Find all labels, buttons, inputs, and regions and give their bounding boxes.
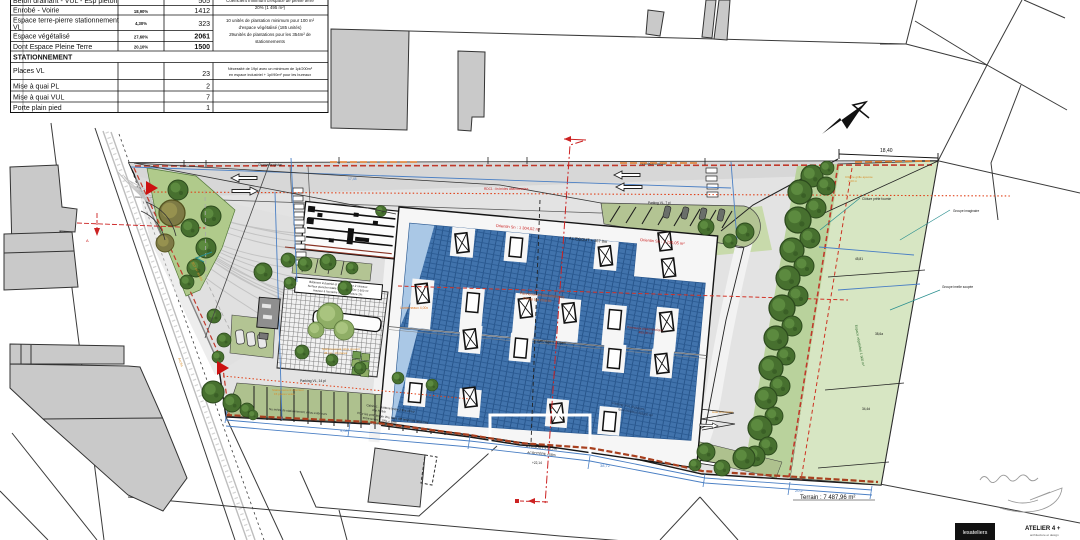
svg-text:38,6a: 38,6a (875, 332, 883, 336)
svg-text:Lanterneaux 4,00x: Lanterneaux 4,00x (400, 306, 428, 310)
svg-text:25 m² - 10 places: 25 m² - 10 places (324, 351, 348, 355)
svg-text:29unités de plantations pour l: 29unités de plantations pour les 354m² d… (229, 32, 311, 37)
svg-text:d'espace végétalisé (185 unité: d'espace végétalisé (185 unités) (239, 25, 302, 30)
svg-text:27,60%: 27,60% (134, 35, 148, 40)
svg-text:4,30%: 4,30% (135, 21, 147, 26)
svg-text:7: 7 (206, 95, 210, 102)
svg-text:Enrobé - Voirie: Enrobé - Voirie (13, 8, 59, 15)
svg-text:9,08: 9,08 (340, 428, 349, 433)
svg-text:20,10%: 20,10% (134, 45, 148, 50)
svg-text:Coefficient minimum d'espace d: Coefficient minimum d'espace de pleine t… (226, 0, 314, 3)
svg-text:Clôture prête fournie: Clôture prête fournie (862, 197, 891, 201)
svg-text:2061: 2061 (194, 34, 210, 41)
svg-text:10 unités de plantation minimu: 10 unités de plantation minimum pour 100… (226, 18, 315, 23)
svg-text:17,48: 17,48 (348, 177, 357, 181)
svg-text:RDC1 : lin brides abandonnées: RDC1 : lin brides abandonnées (484, 187, 529, 191)
svg-text:Places VL: Places VL (13, 68, 45, 75)
svg-text:Mise à quai VUL: Mise à quai VUL (13, 95, 64, 102)
svg-text:1: 1 (206, 105, 210, 112)
svg-text:38,72: 38,72 (600, 463, 611, 468)
svg-text:2: 2 (206, 84, 210, 91)
svg-text:15 places vélos: 15 places vélos (274, 392, 295, 396)
svg-text:Nécessité de 19pl avec un mini: Nécessité de 19pl avec un minimum de 1pl… (228, 67, 313, 71)
svg-text:Parking VL, 7 pl: Parking VL, 7 pl (648, 201, 671, 205)
svg-text:20,2: 20,2 (795, 488, 804, 493)
svg-text:en espace industriel + 1pl/90m: en espace industriel + 1pl/90m² pour les… (229, 73, 311, 77)
svg-text:A: A (86, 238, 89, 243)
svg-text:Espace terre-pierre stationnem: Espace terre-pierre stationnement (13, 18, 119, 25)
svg-text:Espace végétalisé: Espace végétalisé (13, 34, 70, 41)
svg-text:+22,14: +22,14 (532, 461, 542, 465)
svg-text:Groupe imaginaire: Groupe imaginaire (953, 209, 979, 213)
svg-text:18,90%: 18,90% (134, 9, 148, 14)
svg-text:lesateliers: lesateliers (963, 530, 988, 536)
svg-text:23: 23 (202, 71, 210, 78)
svg-text:stationnements: stationnements (255, 39, 286, 44)
svg-text:ATELIER 4 +: ATELIER 4 + (1025, 526, 1061, 532)
svg-text:1412: 1412 (194, 8, 210, 15)
svg-text:Haie champêtre: Haie champêtre (712, 410, 734, 414)
svg-text:Beton drainant - VUL - Esp pie: Beton drainant - VUL - Esp pieton (13, 0, 118, 5)
svg-text:Dont Espace Pleine Terre: Dont Espace Pleine Terre (13, 44, 92, 51)
svg-text:Chamaeterpiston: Chamaeterpiston (258, 163, 283, 167)
svg-text:Porte plain pied: Porte plain pied (13, 105, 62, 112)
svg-text:1500: 1500 (194, 44, 210, 51)
svg-text:Mise à quai PL: Mise à quai PL (13, 84, 59, 91)
svg-text:34,4d: 34,4d (862, 407, 870, 411)
svg-text:STATIONNEMENT: STATIONNEMENT (13, 55, 73, 62)
svg-text:20% (1 495 m²): 20% (1 495 m²) (255, 5, 286, 10)
svg-text:18,40: 18,40 (880, 148, 893, 154)
svg-text:323: 323 (198, 21, 210, 28)
svg-text:Groupe imelle soupée: Groupe imelle soupée (942, 285, 973, 289)
svg-text:VL: VL (13, 25, 22, 32)
svg-text:Parking VL, 14 pl: Parking VL, 14 pl (300, 379, 326, 383)
svg-text:45,81: 45,81 (855, 257, 863, 261)
svg-text:505: 505 (198, 0, 210, 5)
svg-text:architecture et design: architecture et design (1030, 533, 1059, 537)
svg-text:2,00 m: 2,00 m (848, 179, 858, 183)
